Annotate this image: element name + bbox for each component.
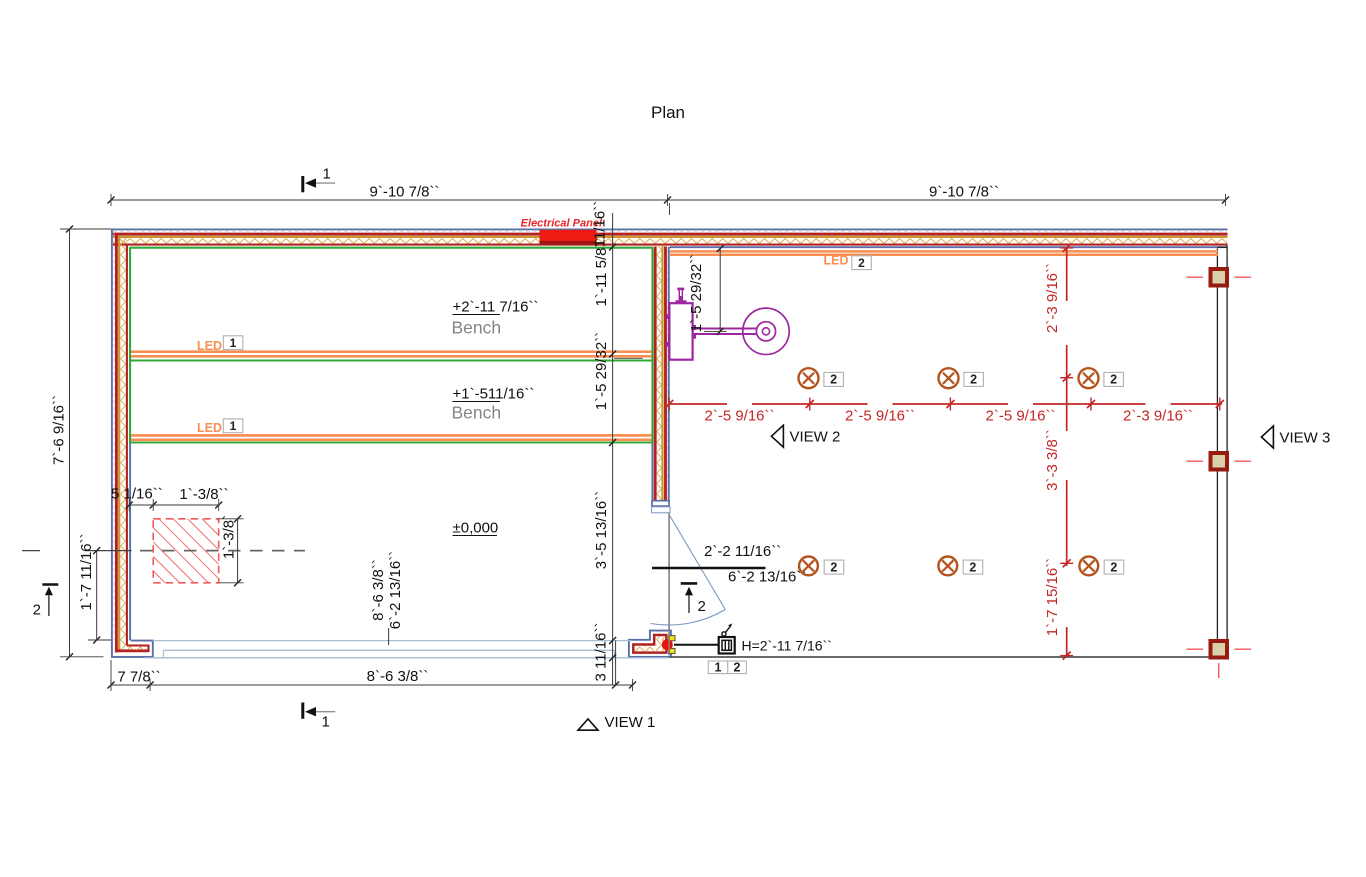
svg-text:2: 2 bbox=[830, 373, 837, 387]
svg-text:1`-3/8`: 1`-3/8` bbox=[221, 515, 238, 559]
svg-text:2: 2 bbox=[1110, 373, 1117, 387]
svg-text:2`-2 11/16``: 2`-2 11/16`` bbox=[704, 543, 781, 560]
svg-text:VIEW 3: VIEW 3 bbox=[1280, 429, 1331, 446]
svg-text:3 11/16``: 3 11/16`` bbox=[593, 623, 610, 682]
svg-text:11/16``: 11/16`` bbox=[592, 201, 609, 247]
svg-text:6`-2 13/16``: 6`-2 13/16`` bbox=[728, 569, 806, 586]
svg-text:+2`-11 7/16``: +2`-11 7/16`` bbox=[453, 299, 539, 316]
svg-text:1`-3/8``: 1`-3/8`` bbox=[179, 486, 228, 503]
svg-text:1: 1 bbox=[230, 419, 237, 433]
svg-text:2: 2 bbox=[698, 598, 706, 615]
svg-text:7 7/8``: 7 7/8`` bbox=[117, 669, 160, 686]
svg-text:2: 2 bbox=[858, 256, 865, 270]
svg-text:2: 2 bbox=[969, 560, 976, 574]
svg-text:8`-6 3/8``: 8`-6 3/8`` bbox=[370, 559, 387, 621]
svg-text:1`-5 29/32``: 1`-5 29/32`` bbox=[688, 254, 705, 332]
svg-text:±0,000: ±0,000 bbox=[453, 520, 499, 537]
svg-text:Bench: Bench bbox=[452, 318, 502, 338]
svg-text:2: 2 bbox=[33, 602, 41, 619]
svg-text:2`-5 9/16``: 2`-5 9/16`` bbox=[985, 408, 1055, 425]
svg-text:1`-7 11/16``: 1`-7 11/16`` bbox=[78, 533, 95, 610]
svg-text:Bench: Bench bbox=[452, 403, 502, 423]
svg-text:1: 1 bbox=[715, 660, 722, 674]
svg-text:3`-3 3/8``: 3`-3 3/8`` bbox=[1044, 429, 1061, 491]
svg-text:2: 2 bbox=[1110, 560, 1117, 574]
svg-text:+1`-511/16``: +1`-511/16`` bbox=[453, 386, 535, 403]
svg-text:8`-6 3/8``: 8`-6 3/8`` bbox=[367, 668, 429, 685]
svg-text:2`-5 9/16``: 2`-5 9/16`` bbox=[845, 408, 915, 425]
svg-text:6`-2 13/16``: 6`-2 13/16`` bbox=[387, 551, 404, 629]
svg-text:7`-6 9/16``: 7`-6 9/16`` bbox=[51, 395, 68, 465]
svg-text:LED: LED bbox=[824, 254, 849, 268]
svg-text:2`-3 9/16``: 2`-3 9/16`` bbox=[1044, 263, 1061, 333]
svg-text:2: 2 bbox=[734, 660, 741, 674]
svg-text:1`-7 15/16``: 1`-7 15/16`` bbox=[1044, 558, 1061, 636]
svg-text:2: 2 bbox=[970, 373, 977, 387]
svg-text:9`-10 7/8``: 9`-10 7/8`` bbox=[929, 184, 999, 201]
svg-text:2`-3 9/16``: 2`-3 9/16`` bbox=[1123, 408, 1193, 425]
svg-text:5 1/16``: 5 1/16`` bbox=[111, 486, 163, 503]
svg-text:1: 1 bbox=[323, 166, 331, 183]
svg-text:LED: LED bbox=[197, 421, 222, 435]
svg-text:LED: LED bbox=[197, 339, 222, 353]
svg-text:2: 2 bbox=[830, 560, 837, 574]
svg-text:VIEW 1: VIEW 1 bbox=[605, 714, 656, 731]
svg-text:1`-5 29/32``: 1`-5 29/32`` bbox=[593, 332, 610, 410]
svg-text:3`-5 13/16``: 3`-5 13/16`` bbox=[593, 491, 610, 569]
svg-text:9`-10 7/8``: 9`-10 7/8`` bbox=[369, 184, 439, 201]
svg-text:1: 1 bbox=[322, 714, 330, 731]
svg-text:H=2`-11 7/16``: H=2`-11 7/16`` bbox=[742, 638, 832, 654]
svg-text:1: 1 bbox=[230, 336, 237, 350]
svg-text:2`-5 9/16``: 2`-5 9/16`` bbox=[704, 408, 774, 425]
svg-text:VIEW 2: VIEW 2 bbox=[790, 429, 841, 446]
svg-text:Plan: Plan bbox=[651, 103, 685, 122]
